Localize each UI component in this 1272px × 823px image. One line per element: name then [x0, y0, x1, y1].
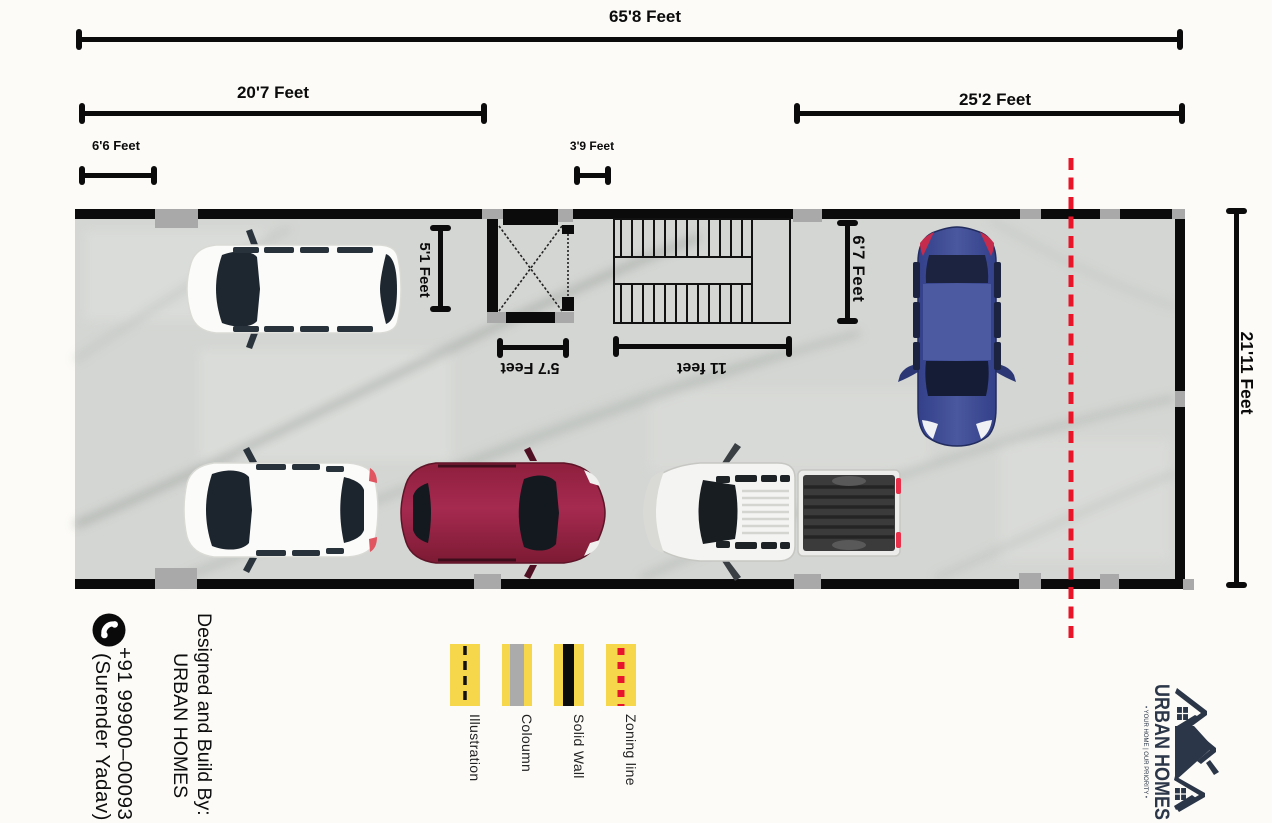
svg-text:6'6 Feet: 6'6 Feet: [92, 138, 141, 153]
svg-text:25'2 Feet: 25'2 Feet: [959, 90, 1031, 109]
svg-text:21'11 Feet: 21'11 Feet: [1237, 332, 1257, 415]
svg-text:11 feet: 11 feet: [676, 359, 726, 376]
svg-text:5'1 Feet: 5'1 Feet: [416, 242, 433, 297]
svg-text:Coloumn: Coloumn: [519, 714, 535, 772]
svg-text:Illustration: Illustration: [467, 714, 483, 781]
svg-text:5'7 Feet: 5'7 Feet: [500, 359, 560, 376]
svg-text:URBAN HOMES: URBAN HOMES: [1150, 684, 1173, 820]
svg-text:Designed and Build By:: Designed and Build By:: [193, 613, 215, 816]
svg-text:3'9 Feet: 3'9 Feet: [570, 139, 614, 153]
svg-text:(Surender Yadav): (Surender Yadav): [91, 653, 114, 821]
svg-text:• YOUR HOME | OUR PRIORITY •: • YOUR HOME | OUR PRIORITY •: [1142, 706, 1149, 799]
svg-text:+91 99900–00093: +91 99900–00093: [113, 647, 136, 820]
svg-text:Zoning line: Zoning line: [623, 714, 639, 786]
svg-text:Solid Wall: Solid Wall: [571, 714, 587, 779]
svg-text:65'8 Feet: 65'8 Feet: [609, 7, 681, 26]
svg-text:20'7 Feet: 20'7 Feet: [237, 83, 309, 102]
svg-text:URBAN HOMES: URBAN HOMES: [169, 653, 191, 798]
svg-text:6'7 Feet: 6'7 Feet: [849, 235, 867, 302]
